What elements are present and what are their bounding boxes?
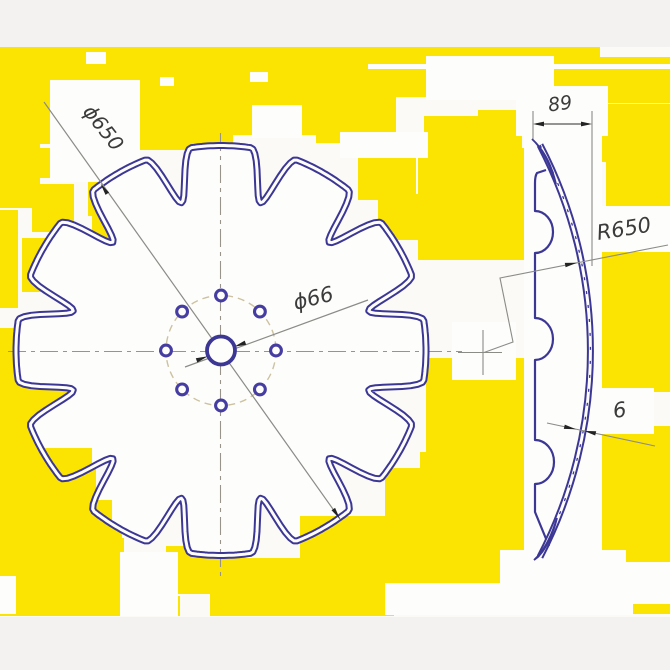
noise-block (0, 210, 18, 308)
white-island (340, 132, 428, 158)
white-speck (0, 576, 16, 614)
white-island (120, 552, 178, 616)
bolt-hole (177, 306, 188, 317)
white-island (252, 105, 302, 138)
noise-block (210, 558, 394, 616)
noise-block (0, 102, 58, 144)
bolt-hole (216, 290, 227, 301)
noise-block (478, 110, 522, 152)
screenshot-root: ϕ650 ϕ66 89 (0, 0, 670, 670)
dim-89-label: 89 (547, 91, 574, 116)
white-speck (250, 72, 268, 82)
bolt-hole (177, 384, 188, 395)
bolt-hole (271, 345, 282, 356)
noise-block (602, 336, 670, 392)
noise-block (300, 516, 420, 560)
noise-block (0, 538, 124, 616)
noise-block (598, 57, 670, 103)
white-speck (86, 52, 106, 64)
bolt-hole (255, 306, 266, 317)
noise-block (418, 148, 530, 260)
white-island (385, 583, 633, 615)
hub-hole (207, 337, 235, 365)
white-streak (368, 64, 670, 69)
noise-block (600, 252, 670, 340)
drawing-canvas: ϕ650 ϕ66 89 (0, 0, 670, 670)
white-island (606, 562, 670, 604)
bolt-hole (255, 384, 266, 395)
bolt-hole (216, 400, 227, 411)
white-speck (160, 77, 174, 86)
noise-block (54, 500, 112, 546)
noise-block (606, 146, 670, 206)
bolt-hole (161, 345, 172, 356)
white-island (426, 56, 554, 100)
